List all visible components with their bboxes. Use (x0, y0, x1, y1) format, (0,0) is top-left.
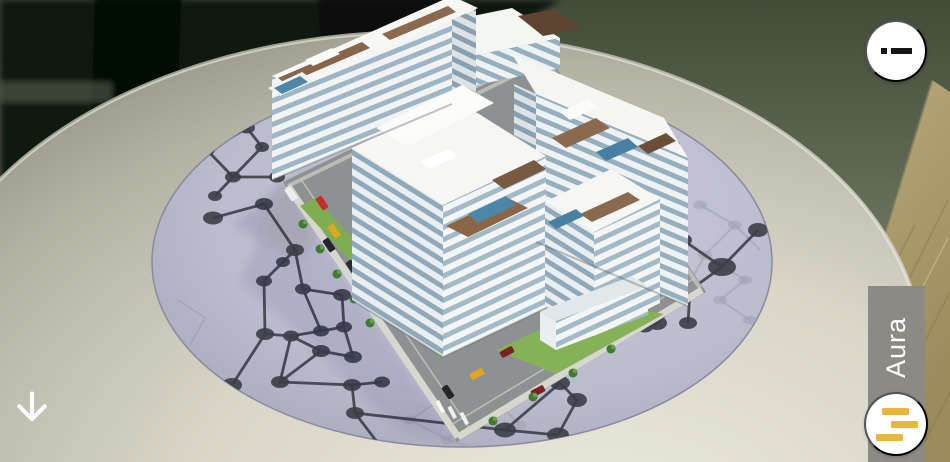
dash-dot-logo-icon (881, 48, 887, 54)
staggered-bars-menu-icon (882, 408, 909, 415)
menu-button[interactable] (864, 392, 928, 456)
staggered-bar-2 (891, 421, 918, 428)
ar-camera-view (0, 0, 950, 462)
dash-bar-icon (891, 48, 912, 54)
staggered-bar-3 (876, 434, 903, 441)
download-arrow-button[interactable] (10, 384, 54, 434)
side-tab-label: Aura (881, 316, 912, 377)
arrow-down-icon (12, 387, 52, 431)
minimize-logo-button[interactable] (865, 20, 927, 82)
ar-app-screen: Aura (0, 0, 950, 462)
